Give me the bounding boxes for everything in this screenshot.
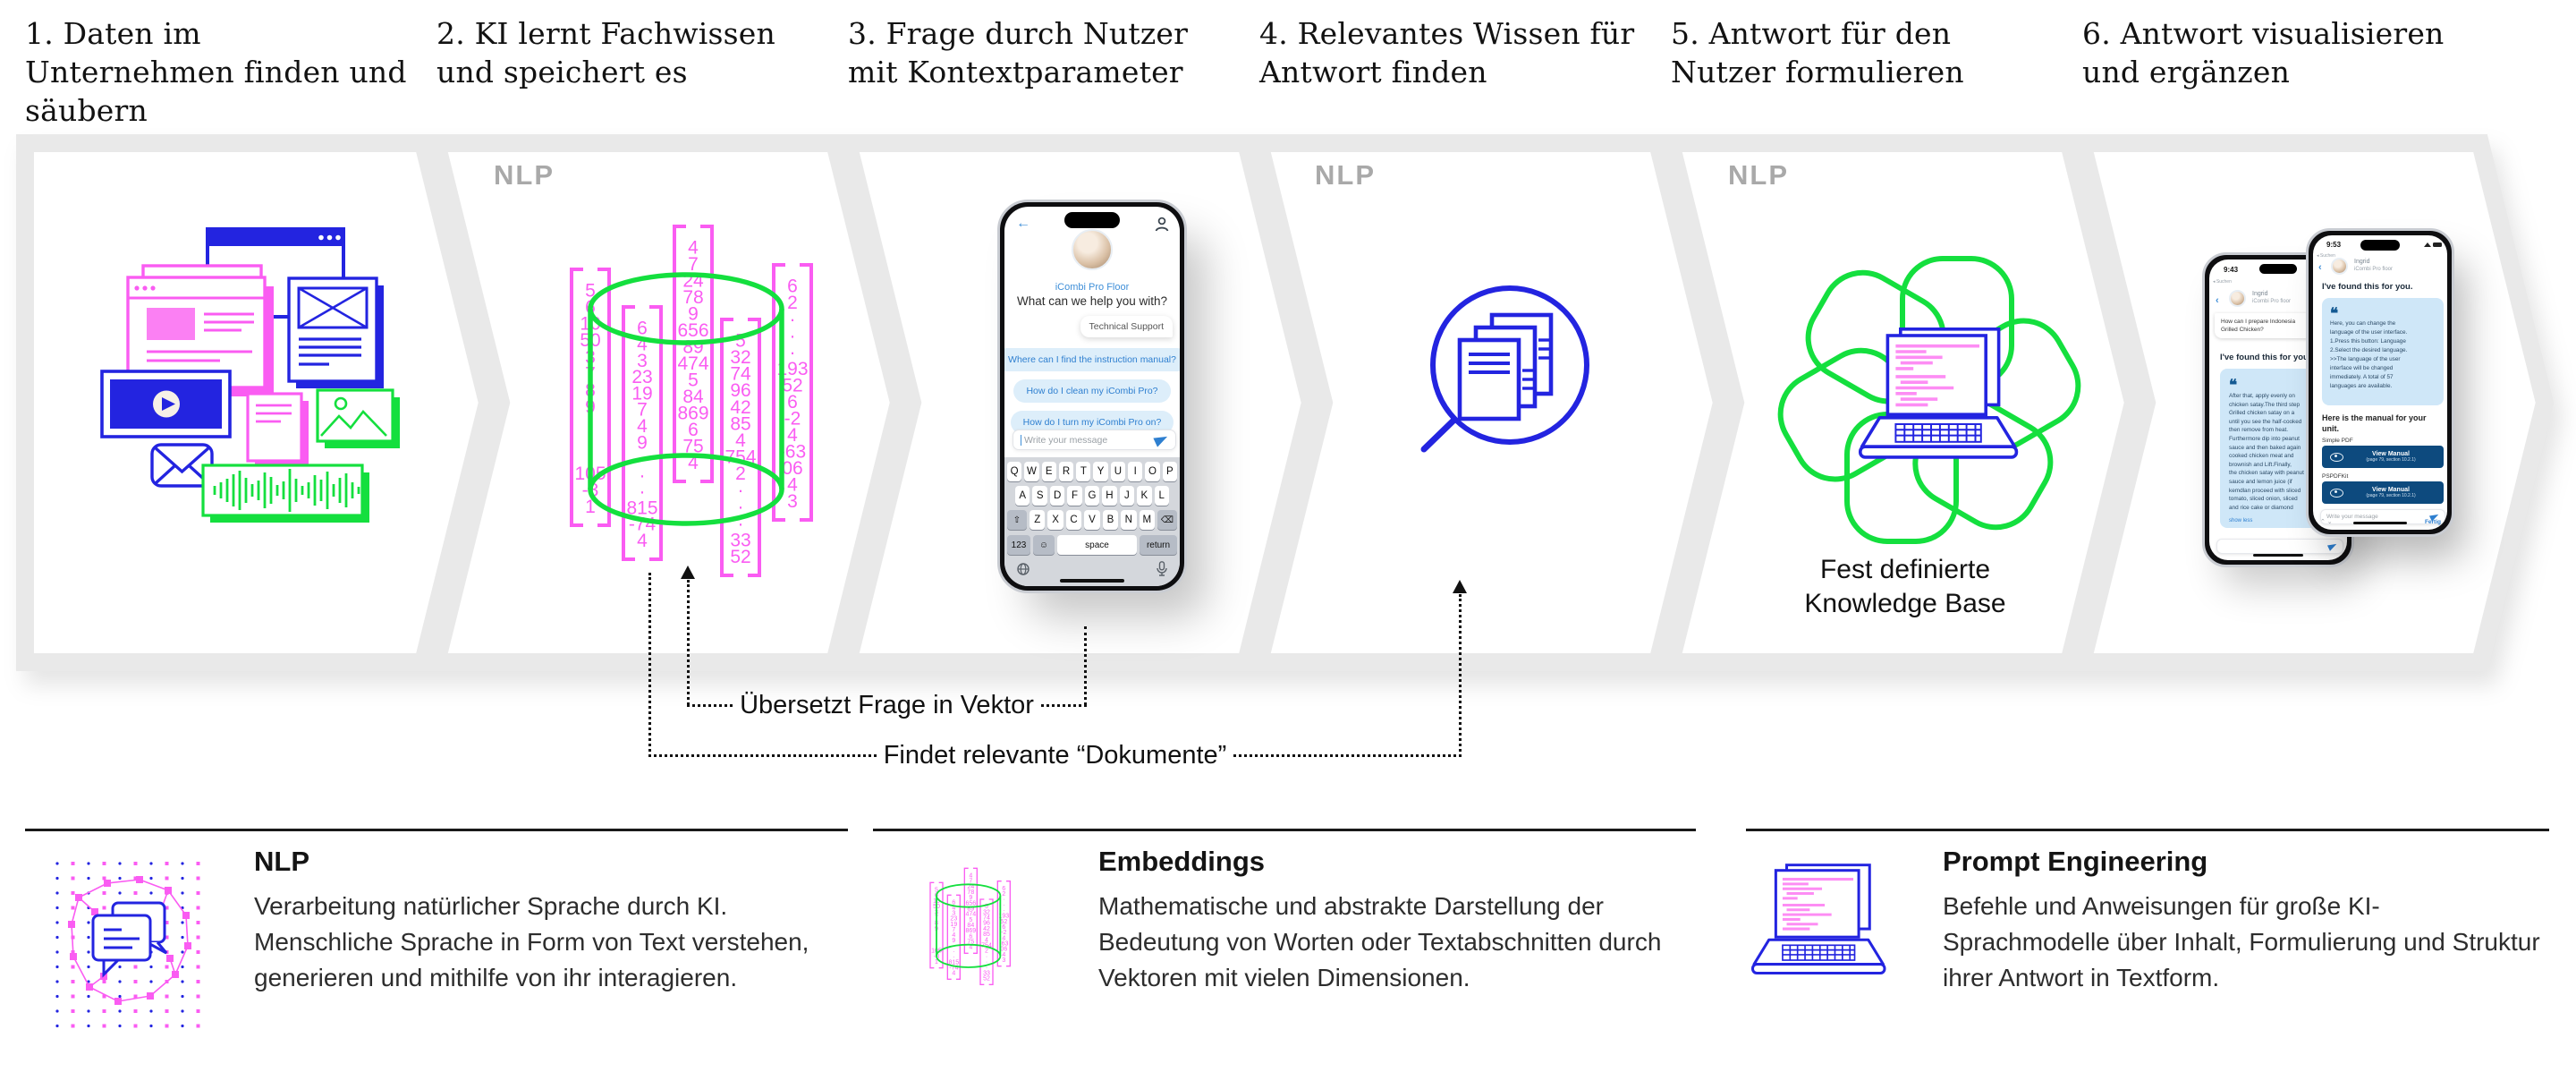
- rag-process-infographic: 1. Daten im Unternehmen finden und säube…: [0, 0, 2576, 1072]
- key-k[interactable]: K: [1137, 486, 1151, 506]
- avatar: [2229, 290, 2246, 307]
- suggestion-chip-clean[interactable]: How do I clean my iCombi Pro?: [1013, 379, 1170, 403]
- step-5-title: 5. Antwort für den Nutzer formulieren: [1671, 14, 2064, 91]
- svg-text:3: 3: [787, 491, 798, 512]
- quote-icon: ❝: [2330, 310, 2338, 319]
- answer-quote-text: Here, you can change the language of the…: [2330, 319, 2439, 391]
- contact-name: Ingrid: [2252, 291, 2268, 297]
- answer-quote-card: ❝ Here, you can change the language of t…: [2322, 298, 2444, 405]
- message-input-placeholder: Write your message: [1024, 435, 1155, 446]
- key-⇧[interactable]: ⇧: [1007, 510, 1027, 530]
- dotted-line-to-embeddings: [687, 580, 690, 705]
- glossary-definition: Mathematische und abstrakte Darstellung …: [1098, 889, 1689, 996]
- key-o[interactable]: O: [1145, 462, 1159, 481]
- key-y[interactable]: Y: [1093, 462, 1107, 481]
- found-heading: I've found this for you.: [2322, 282, 2412, 292]
- eye-icon: [2330, 489, 2343, 498]
- data-sources-illustration: [94, 222, 402, 526]
- svg-text:52: 52: [983, 976, 990, 983]
- laptop-code-icon: [1859, 328, 2020, 472]
- done-link[interactable]: Fertig: [2425, 519, 2441, 525]
- step-1-title: 1. Daten im Unternehmen finden und säube…: [25, 14, 419, 130]
- svg-text:3: 3: [1002, 957, 1005, 964]
- pdf-label-1: Simple PDF: [2322, 438, 2353, 444]
- key-m[interactable]: M: [1140, 510, 1155, 530]
- view-manual-button-1[interactable]: View Manual (page 79, section 10.2.1): [2322, 446, 2444, 468]
- key-d[interactable]: D: [1050, 486, 1064, 506]
- message-input-placeholder: Write your message: [2326, 514, 2430, 520]
- key-p[interactable]: P: [1163, 462, 1177, 481]
- home-indicator[interactable]: [1060, 579, 1124, 583]
- status-back-link[interactable]: ◂ Suchen: [2213, 279, 2232, 285]
- contact-name: Ingrid: [2354, 259, 2370, 265]
- back-arrow-icon[interactable]: ←: [1016, 216, 1030, 232]
- step-4-title: 4. Relevantes Wissen für Antwort finden: [1259, 14, 1653, 91]
- nlp-badge-step2: NLP: [494, 159, 555, 191]
- step-6-title: 6. Antwort visualisieren und ergänzen: [2082, 14, 2476, 91]
- key-123[interactable]: 123: [1007, 535, 1030, 555]
- glossary-definition: Befehle und Anweisungen für große KI-Spr…: [1943, 889, 2544, 996]
- step-3-title: 3. Frage durch Nutzer mit Kontextparamet…: [848, 14, 1241, 91]
- arrow-to-embeddings: [681, 566, 695, 579]
- glossary-term: Embeddings: [1098, 846, 1689, 878]
- message-input[interactable]: Write your message: [1013, 430, 1176, 450]
- glossary-term: Prompt Engineering: [1943, 846, 2544, 878]
- key-z[interactable]: Z: [1030, 510, 1045, 530]
- manual-heading: Here is the manual for your unit.: [2322, 413, 2435, 434]
- status-time: 9:43: [2224, 266, 2238, 274]
- suggestion-chip-manual[interactable]: Where can I find the instruction manual?: [1004, 348, 1180, 371]
- key-s[interactable]: S: [1032, 486, 1046, 506]
- key-u[interactable]: U: [1111, 462, 1125, 481]
- eye-icon: [2330, 453, 2343, 462]
- chat-phone-screen: ← iCombi Pro Floor What can we help you …: [1004, 207, 1180, 586]
- key-l[interactable]: L: [1155, 486, 1169, 506]
- avatar: [2331, 258, 2348, 275]
- avatar: [1072, 229, 1113, 270]
- person-icon[interactable]: [1155, 217, 1169, 232]
- key-☺[interactable]: ☺: [1033, 535, 1055, 555]
- back-arrow-icon[interactable]: ‹: [2318, 262, 2322, 273]
- view-manual-button-2[interactable]: View Manual (page 79, section 10.2.1): [2322, 481, 2444, 504]
- chat-phone-mockup: ← iCombi Pro Floor What can we help you …: [997, 200, 1187, 593]
- dynamic-island: [1064, 212, 1120, 228]
- laptop-code-icon: [1751, 864, 1887, 986]
- glossary-term: NLP: [254, 846, 834, 878]
- key-x[interactable]: X: [1047, 510, 1063, 530]
- svg-text:4: 4: [637, 531, 648, 551]
- keyboard: QWERTYUIOP ASDFGHJKL ⇧ZXCVBNM⌫ 123☺space…: [1004, 457, 1180, 586]
- key-j[interactable]: J: [1120, 486, 1134, 506]
- document-image-icon: [289, 278, 384, 388]
- send-icon[interactable]: [2327, 541, 2338, 551]
- back-arrow-icon[interactable]: ‹: [2216, 295, 2219, 306]
- quote-icon: ❝: [2229, 381, 2237, 390]
- contact-subtitle: iCombi Pro floor: [2354, 267, 2393, 272]
- key-f[interactable]: F: [1067, 486, 1081, 506]
- key-c[interactable]: C: [1066, 510, 1081, 530]
- key-q[interactable]: Q: [1007, 462, 1021, 481]
- answer-phone-front-screen: ◂ Suchen 9:53 ‹ Ingrid iCombi Pro floor …: [2313, 235, 2447, 530]
- video-player-icon: [102, 371, 230, 437]
- key-h[interactable]: H: [1102, 486, 1116, 506]
- key-v[interactable]: V: [1084, 510, 1099, 530]
- knowledge-base-caption: Fest definierte Knowledge Base: [1767, 553, 2044, 621]
- nlp-badge-step4: NLP: [1315, 159, 1376, 191]
- key-e[interactable]: E: [1042, 462, 1056, 481]
- key-return[interactable]: return: [1140, 535, 1177, 555]
- svg-text:4: 4: [969, 945, 972, 951]
- status-back-link[interactable]: ◂ Suchen: [2317, 253, 2335, 259]
- answer-phone-front: ◂ Suchen 9:53 ‹ Ingrid iCombi Pro floor …: [2306, 228, 2454, 537]
- vector-database-illustration: 5610503789···105-316432319749···815-7444…: [550, 204, 829, 591]
- key-i[interactable]: I: [1128, 462, 1142, 481]
- step-2-title: 2. KI lernt Fachwissen und speichert es: [436, 14, 830, 91]
- image-icon: [318, 390, 400, 448]
- message-input[interactable]: [2216, 539, 2343, 554]
- documents-annotation: Findet relevante “Dokumente”: [648, 740, 1462, 770]
- found-heading: I've found this for you: [2220, 353, 2309, 362]
- svg-text:52: 52: [730, 547, 750, 567]
- glossary-definition: Verarbeitung natürlicher Sprache durch K…: [254, 889, 834, 996]
- key-t[interactable]: T: [1076, 462, 1090, 481]
- nlp-network-icon: [52, 858, 206, 1037]
- key-b[interactable]: B: [1103, 510, 1118, 530]
- home-indicator[interactable]: [2253, 554, 2303, 557]
- key-r[interactable]: R: [1059, 462, 1073, 481]
- glossary-embeddings: 5610503789···105-316432319749···815-7444…: [873, 829, 1696, 1072]
- dotted-line-to-search: [1459, 594, 1462, 757]
- key-n[interactable]: N: [1121, 510, 1136, 530]
- pink-document-icon: [248, 394, 309, 468]
- nlp-badge-step5: NLP: [1728, 159, 1789, 191]
- show-less-link[interactable]: show less: [2229, 518, 2252, 523]
- greeting-text: What can we help you with?: [1004, 294, 1180, 308]
- key-a[interactable]: A: [1015, 486, 1030, 506]
- microphone-icon[interactable]: [1157, 561, 1167, 576]
- arrow-to-search: [1453, 580, 1467, 593]
- dotted-line-from-embeddings: [648, 573, 651, 757]
- document-search-illustration: [1395, 268, 1619, 474]
- pdf-label-2: PSPDFKit: [2322, 473, 2348, 480]
- status-time: 9:53: [2326, 241, 2341, 249]
- key-⌫[interactable]: ⌫: [1157, 510, 1177, 530]
- vector-annotation: Übersetzt Frage in Vektor: [687, 690, 1087, 720]
- send-icon[interactable]: [1153, 432, 1169, 447]
- key-g[interactable]: G: [1085, 486, 1099, 506]
- vector-annotation-label: Übersetzt Frage in Vektor: [733, 691, 1041, 720]
- documents-annotation-label: Findet relevante “Dokumente”: [877, 741, 1234, 770]
- keyboard-collapse-icons[interactable]: ⌃ ⌄: [2320, 518, 2333, 525]
- audio-waveform-icon: [203, 465, 369, 523]
- contact-name: iCombi Pro Floor: [1004, 282, 1180, 293]
- embeddings-cylinder-icon: 5610503789···105-316432319749···815-7444…: [923, 860, 1016, 991]
- glossary-prompt-engineering: Prompt Engineering Befehle und Anweisung…: [1746, 829, 2549, 1072]
- globe-icon[interactable]: [1017, 563, 1030, 575]
- svg-text:4: 4: [952, 971, 955, 977]
- user-message-bubble: Technical Support: [1080, 316, 1173, 337]
- home-indicator[interactable]: [2353, 522, 2407, 524]
- key-w[interactable]: W: [1024, 462, 1038, 481]
- glossary-nlp: NLP Verarbeitung natürlicher Sprache dur…: [25, 829, 848, 1072]
- contact-subtitle: iCombi Pro floor: [2252, 299, 2291, 304]
- key-space[interactable]: space: [1057, 535, 1137, 555]
- status-icons: [2424, 242, 2442, 247]
